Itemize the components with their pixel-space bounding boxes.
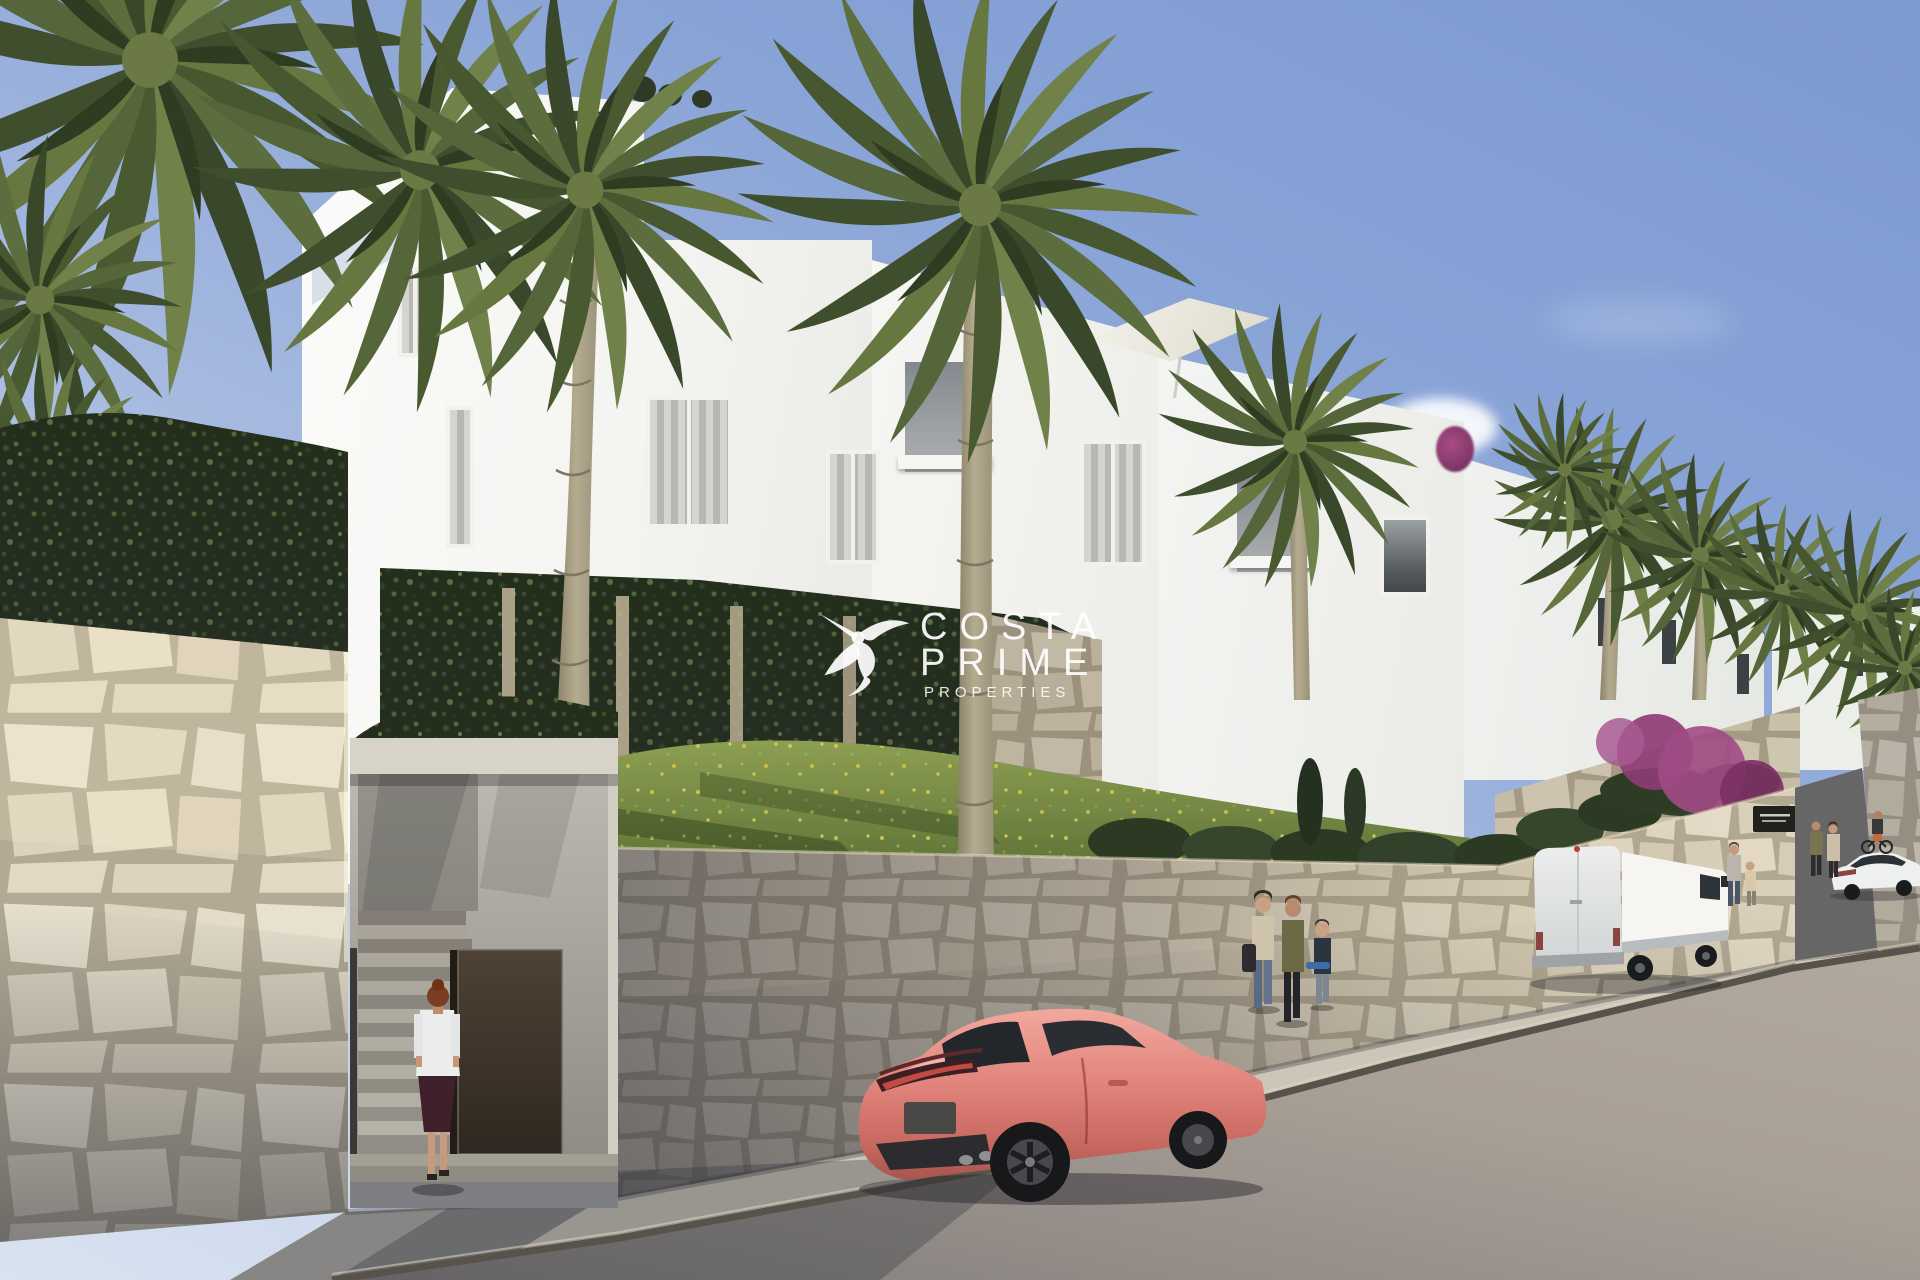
pedestrian-couple bbox=[1806, 820, 1846, 884]
watermark-brand-line3: PROPERTIES bbox=[924, 684, 1070, 701]
cyclist bbox=[1860, 810, 1894, 856]
pedestrian-child-skateboard bbox=[1306, 919, 1331, 1004]
pink-sports-car bbox=[846, 984, 1276, 1214]
hummingbird-icon bbox=[818, 588, 914, 710]
entrance-door bbox=[458, 950, 562, 1154]
architectural-render-scene: COSTA PRIME PROPERTIES bbox=[0, 0, 1920, 1280]
watermark: COSTA PRIME PROPERTIES bbox=[818, 584, 1128, 720]
watermark-brand-line2: PRIME bbox=[920, 642, 1100, 685]
white-van bbox=[1524, 836, 1734, 1001]
pedestrian-man-child bbox=[1720, 842, 1760, 912]
entrance bbox=[350, 738, 618, 1208]
pedestrian-olive-jacket bbox=[1282, 895, 1304, 1022]
pedestrian-woman-bag bbox=[1242, 890, 1274, 1008]
pedestrian-group bbox=[1240, 888, 1340, 1033]
